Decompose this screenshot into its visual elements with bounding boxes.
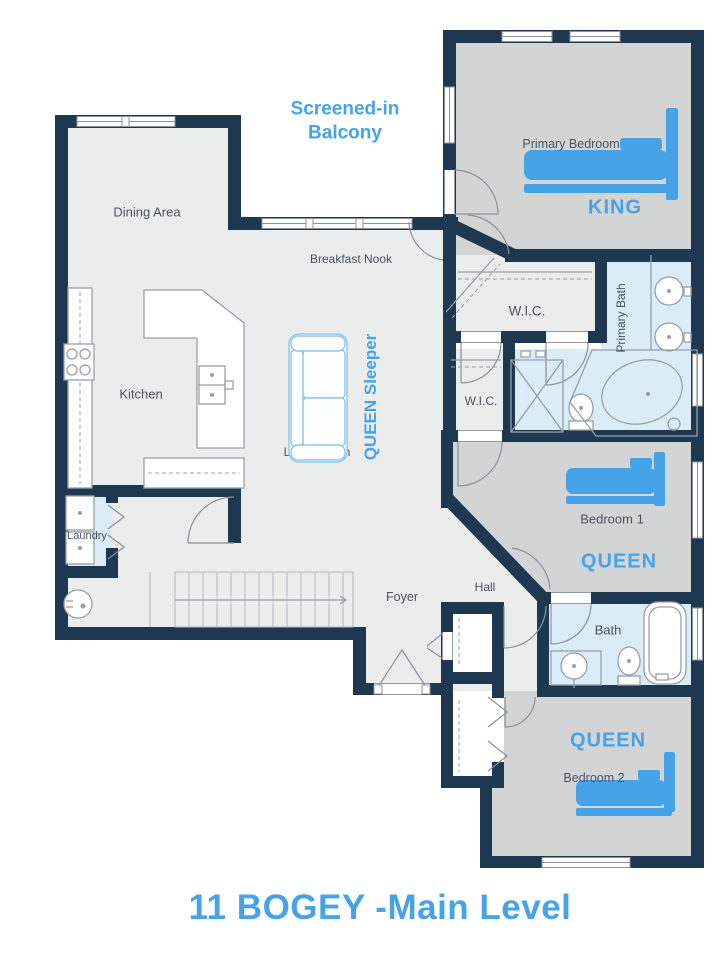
sofa-icon bbox=[289, 334, 347, 462]
primary-bedroom-label: Primary Bedroom bbox=[522, 137, 619, 151]
toilet-icon-primary bbox=[569, 394, 593, 430]
hall-label: Hall bbox=[475, 580, 496, 594]
bedroom2-label: Bedroom 2 bbox=[563, 771, 624, 785]
breakfast-nook-label: Breakfast Nook bbox=[310, 252, 392, 266]
floor-plan-title: 11 BOGEY -Main Level bbox=[189, 888, 572, 928]
primary-bath-label: Primary Bath bbox=[614, 283, 628, 352]
dining-area-label: Dining Area bbox=[113, 205, 180, 220]
bedroom1-label: Bedroom 1 bbox=[580, 512, 644, 527]
wic-primary-label: W.I.C. bbox=[509, 304, 546, 319]
king-bed-tag: KING bbox=[588, 197, 642, 220]
wic-secondary-label: W.I.C. bbox=[465, 394, 498, 408]
queen-bed2-tag: QUEEN bbox=[570, 730, 646, 753]
queen-bed1-tag: QUEEN bbox=[581, 551, 657, 574]
stove-icon bbox=[64, 344, 94, 380]
floor-plan: Living Room bbox=[0, 0, 725, 960]
bathtub-icon bbox=[644, 602, 686, 684]
foyer-label: Foyer bbox=[386, 590, 418, 604]
queen-sleeper-tag: QUEEN Sleeper bbox=[361, 334, 381, 461]
bath-label: Bath bbox=[595, 623, 622, 638]
toilet-icon-bath bbox=[618, 647, 640, 685]
balcony-label: Screened-in Balcony bbox=[270, 97, 420, 145]
laundry-label: Laundry bbox=[67, 530, 107, 542]
kitchen-label: Kitchen bbox=[119, 387, 162, 402]
